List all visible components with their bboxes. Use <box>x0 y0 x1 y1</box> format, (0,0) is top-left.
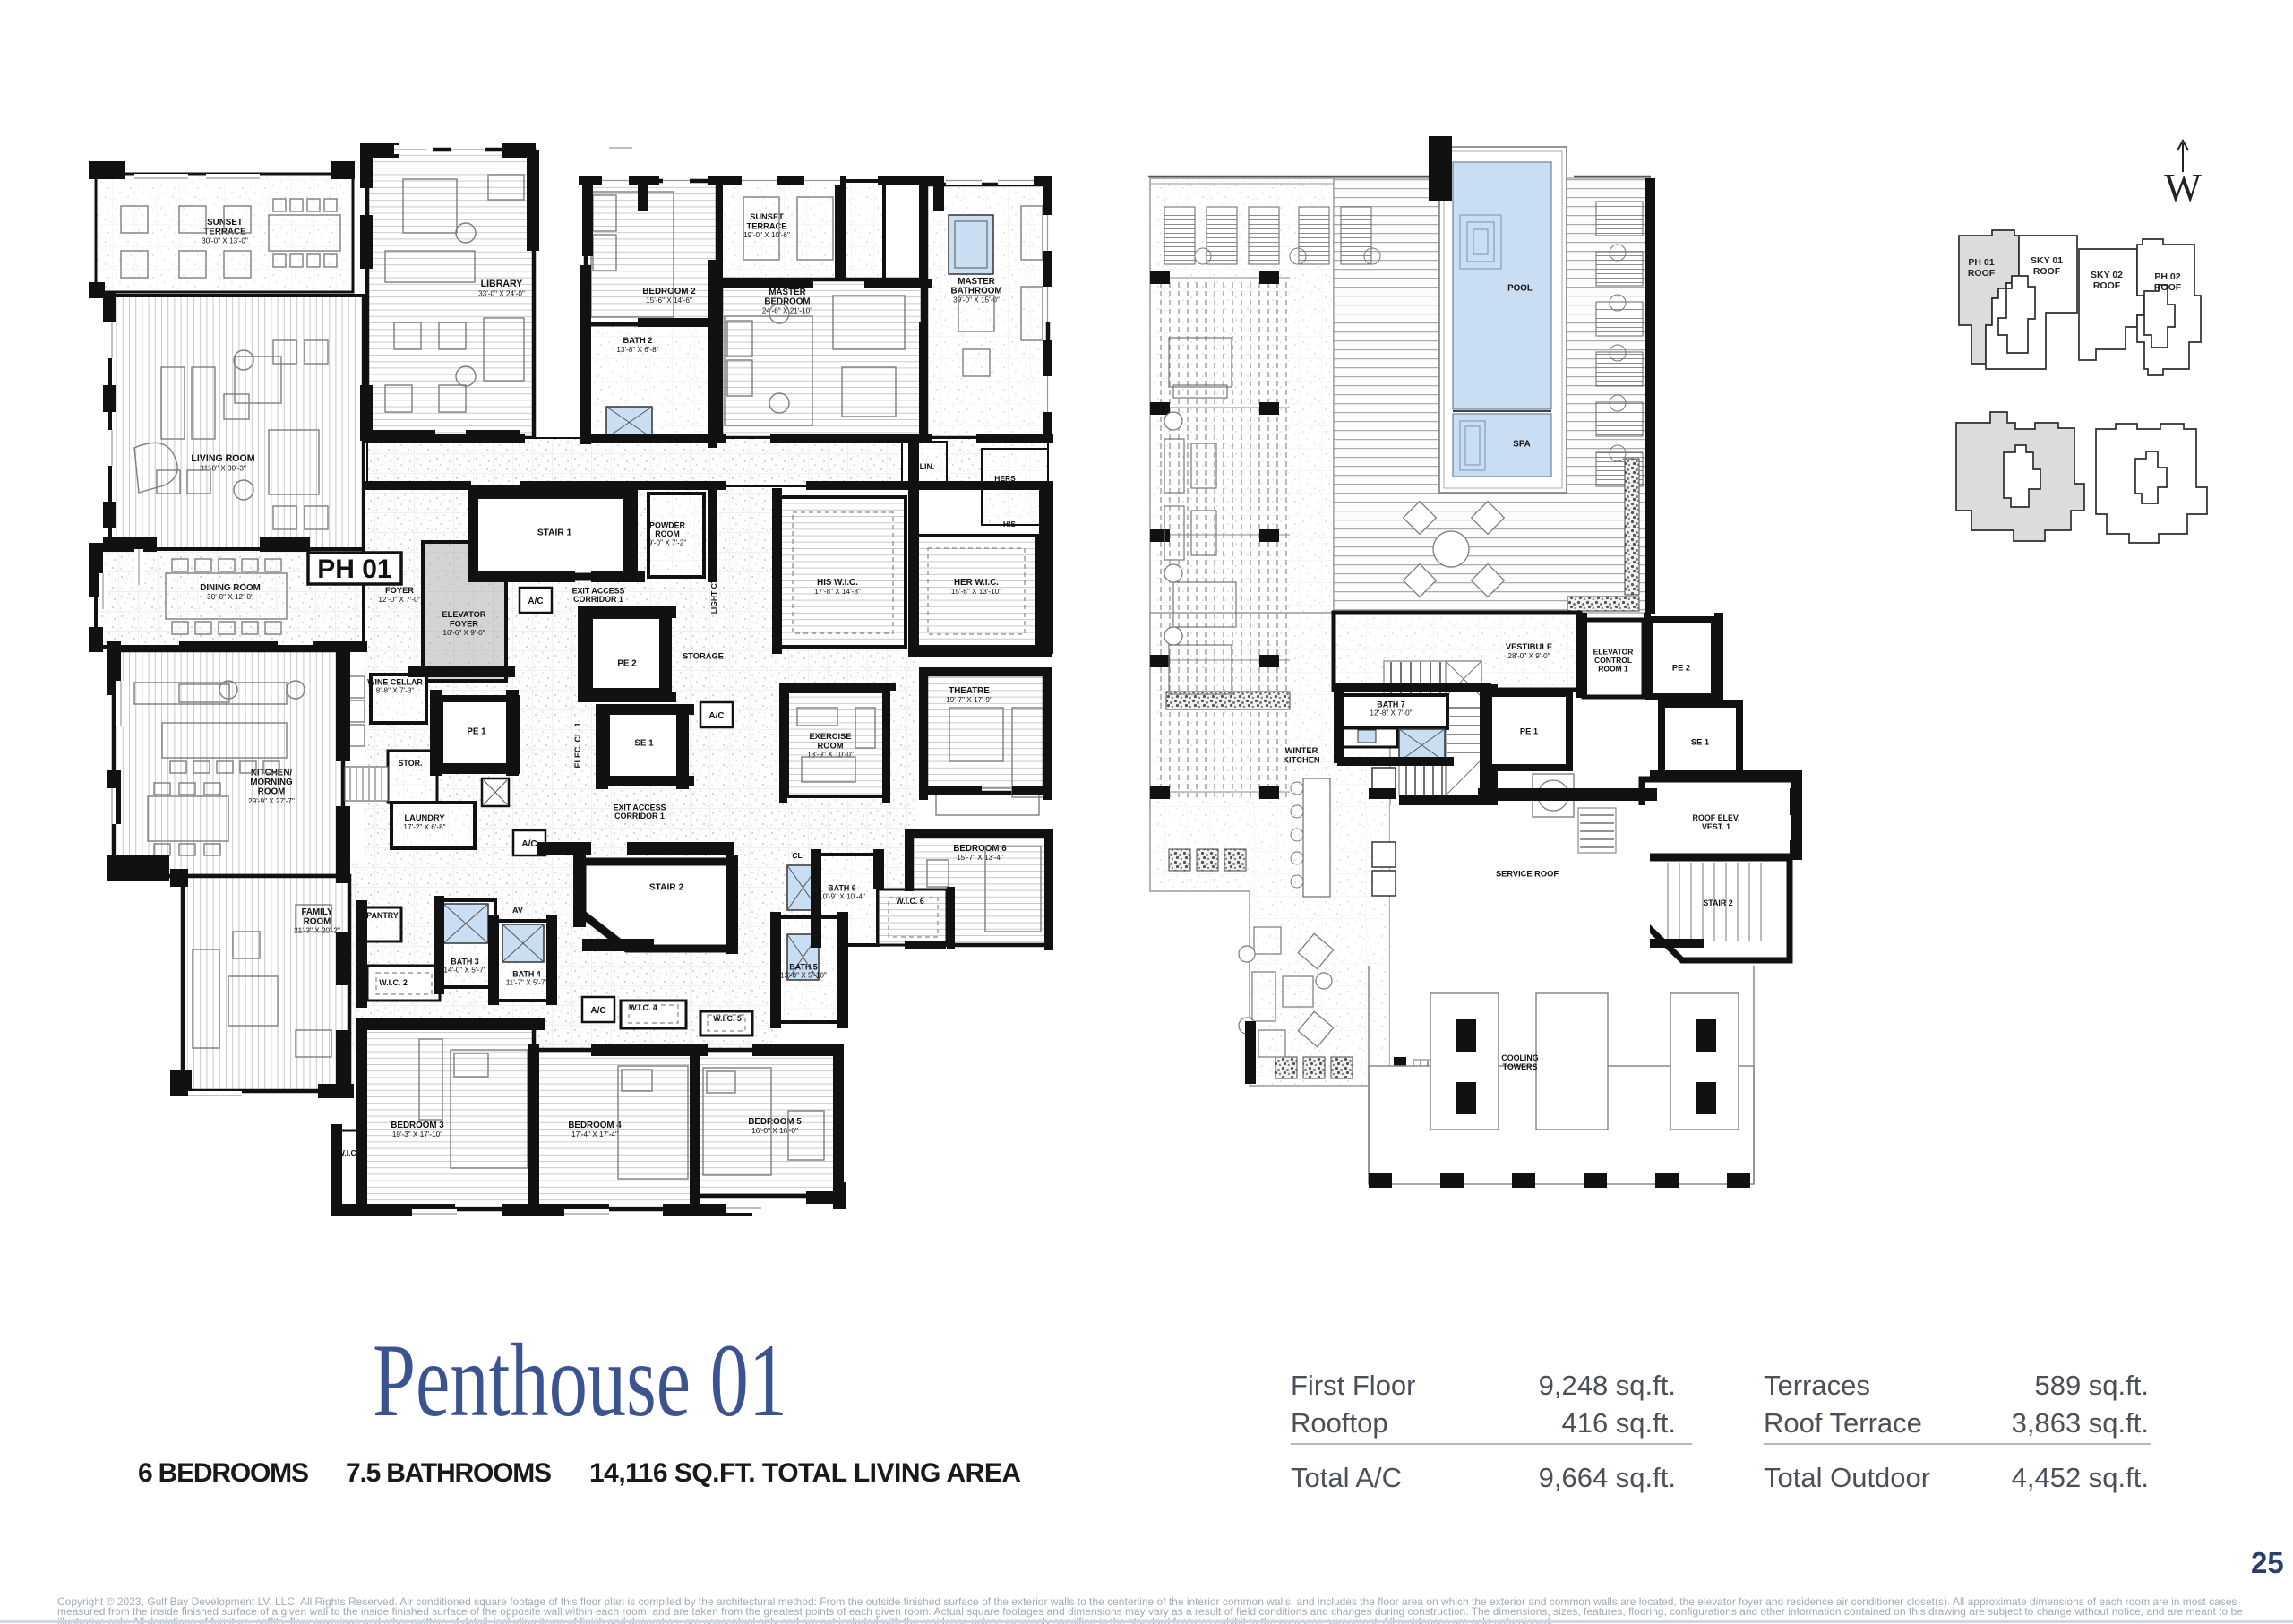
svg-text:PANTRY: PANTRY <box>366 911 399 920</box>
svg-text:SUNSET: SUNSET <box>207 218 243 228</box>
svg-text:BATH 2: BATH 2 <box>623 336 653 345</box>
svg-text:9,664 sq.ft.: 9,664 sq.ft. <box>1539 1462 1676 1493</box>
svg-text:Rooftop: Rooftop <box>1291 1407 1388 1439</box>
svg-text:16'-6" X 9'-0": 16'-6" X 9'-0" <box>442 629 485 637</box>
svg-text:EXIT ACCESS: EXIT ACCESS <box>614 803 666 812</box>
svg-text:ROOM: ROOM <box>258 787 285 797</box>
svg-text:HIS: HIS <box>1003 520 1017 528</box>
svg-text:W.I.C. 2: W.I.C. 2 <box>379 978 408 987</box>
svg-text:WINTER: WINTER <box>1285 746 1318 755</box>
svg-text:KITCHEN: KITCHEN <box>1283 756 1320 765</box>
svg-text:17'-4" X 17'-4": 17'-4" X 17'-4" <box>571 1130 618 1139</box>
svg-text:17'-8" X 14'-8": 17'-8" X 14'-8" <box>814 588 861 596</box>
svg-text:13'-8" X 6'-8": 13'-8" X 6'-8" <box>616 346 658 354</box>
svg-text:ELEVATOR: ELEVATOR <box>442 610 485 619</box>
svg-text:14,116 SQ.FT. TOTAL LIVING ARE: 14,116 SQ.FT. TOTAL LIVING AREA <box>589 1458 1021 1488</box>
svg-text:STOR.: STOR. <box>399 759 423 768</box>
svg-text:17'-2" X 6'-8": 17'-2" X 6'-8" <box>403 823 445 831</box>
svg-text:Total Outdoor: Total Outdoor <box>1764 1462 1930 1493</box>
svg-text:4,452 sq.ft.: 4,452 sq.ft. <box>2012 1462 2149 1493</box>
svg-text:First Floor: First Floor <box>1291 1370 1416 1401</box>
svg-text:SE 1: SE 1 <box>634 738 654 748</box>
svg-text:FOYER: FOYER <box>450 619 478 628</box>
svg-text:16'-0" X 16'-0": 16'-0" X 16'-0" <box>751 1127 798 1135</box>
svg-text:ROOM: ROOM <box>304 916 331 926</box>
svg-text:TERRACE: TERRACE <box>747 221 787 230</box>
svg-text:A/C: A/C <box>528 597 543 606</box>
svg-text:A/C: A/C <box>521 839 537 849</box>
svg-text:ROOM: ROOM <box>655 529 680 538</box>
svg-text:Total A/C: Total A/C <box>1291 1462 1402 1493</box>
svg-text:ROOF ELEV.: ROOF ELEV. <box>1693 813 1740 822</box>
svg-text:LAUNDRY: LAUNDRY <box>404 813 445 822</box>
svg-text:STAIR 2: STAIR 2 <box>1703 898 1732 907</box>
svg-text:SKY 02: SKY 02 <box>2091 270 2123 280</box>
svg-text:LIVING ROOM: LIVING ROOM <box>191 453 254 464</box>
svg-text:PE 2: PE 2 <box>1672 663 1690 672</box>
svg-text:AV: AV <box>512 906 523 915</box>
svg-text:STAIR 2: STAIR 2 <box>649 883 684 893</box>
svg-text:Terraces: Terraces <box>1764 1370 1870 1401</box>
svg-text:9,248 sq.ft.: 9,248 sq.ft. <box>1539 1370 1676 1401</box>
svg-text:WINE CELLAR: WINE CELLAR <box>367 677 423 686</box>
svg-text:CORRIDOR 1: CORRIDOR 1 <box>614 812 665 821</box>
svg-text:19'-0" X 10'-6": 19'-0" X 10'-6" <box>743 231 790 239</box>
svg-text:SPA: SPA <box>1513 439 1530 449</box>
svg-text:ROOF: ROOF <box>2093 280 2121 291</box>
svg-text:Penthouse 01: Penthouse 01 <box>373 1323 787 1439</box>
svg-text:19'-7" X 17'-9": 19'-7" X 17'-9" <box>946 696 992 704</box>
svg-text:416 sq.ft.: 416 sq.ft. <box>1561 1407 1676 1439</box>
svg-text:589 sq.ft.: 589 sq.ft. <box>2034 1370 2149 1401</box>
svg-text:STORAGE: STORAGE <box>683 651 724 660</box>
svg-text:THEATRE: THEATRE <box>949 686 990 696</box>
svg-text:SE 1: SE 1 <box>1691 737 1709 746</box>
svg-text:BEDROOM 3: BEDROOM 3 <box>391 1121 444 1130</box>
svg-text:21'-3" X 20'-2": 21'-3" X 20'-2" <box>294 927 340 935</box>
svg-text:28'-0" X 9'-0": 28'-0" X 9'-0" <box>1507 652 1550 660</box>
svg-text:MASTER: MASTER <box>958 277 994 287</box>
svg-text:BEDROOM 5: BEDROOM 5 <box>748 1117 802 1127</box>
svg-text:BATH 3: BATH 3 <box>451 957 478 966</box>
svg-text:BATH 4: BATH 4 <box>512 969 540 978</box>
svg-text:15'-6" X 13'-10": 15'-6" X 13'-10" <box>951 588 1001 596</box>
svg-text:EXERCISE: EXERCISE <box>809 732 851 741</box>
svg-text:W.I.C. 6: W.I.C. 6 <box>896 897 924 906</box>
svg-text:HER W.I.C.: HER W.I.C. <box>954 578 999 588</box>
svg-text:33'-0" X 24'-0": 33'-0" X 24'-0" <box>478 290 525 298</box>
svg-text:PE 1: PE 1 <box>1520 726 1538 735</box>
svg-text:LIN.: LIN. <box>920 462 935 471</box>
svg-text:TERRACE: TERRACE <box>203 227 246 236</box>
svg-text:31'-0" X 30'-3": 31'-0" X 30'-3" <box>200 465 246 473</box>
svg-text:12'-8" X 7'-0": 12'-8" X 7'-0" <box>1370 709 1412 717</box>
svg-text:6 BEDROOMS: 6 BEDROOMS <box>138 1458 309 1488</box>
svg-text:FOYER: FOYER <box>385 586 414 595</box>
svg-text:CL: CL <box>792 851 802 860</box>
svg-text:39'-0" X 15'-0": 39'-0" X 15'-0" <box>953 296 1000 305</box>
svg-text:10'-9" X 10'-4": 10'-9" X 10'-4" <box>819 893 865 901</box>
svg-text:ROOF: ROOF <box>2033 266 2061 277</box>
svg-text:STAIR 1: STAIR 1 <box>537 528 572 538</box>
svg-text:14'-0" X 5'-7": 14'-0" X 5'-7" <box>443 967 485 975</box>
svg-text:MASTER: MASTER <box>769 288 805 297</box>
svg-text:BATH 7: BATH 7 <box>1377 700 1404 709</box>
svg-text:ROOM: ROOM <box>818 741 844 750</box>
svg-text:EXIT ACCESS: EXIT ACCESS <box>572 586 625 595</box>
svg-text:MORNING: MORNING <box>250 778 293 787</box>
svg-text:HIS W.I.C.: HIS W.I.C. <box>817 578 858 588</box>
svg-text:CONTROL: CONTROL <box>1594 656 1632 665</box>
svg-text:BEDROOM: BEDROOM <box>764 296 810 306</box>
svg-text:A/C: A/C <box>590 1006 605 1016</box>
svg-text:FAMILY: FAMILY <box>301 907 332 917</box>
svg-text:ROOM 1: ROOM 1 <box>1598 665 1628 674</box>
svg-text:SERVICE ROOF: SERVICE ROOF <box>1496 869 1559 878</box>
svg-text:19'-3" X 17'-10": 19'-3" X 17'-10" <box>392 1130 442 1139</box>
svg-text:W.I.C. 5: W.I.C. 5 <box>713 1014 742 1023</box>
svg-text:A/C: A/C <box>709 711 724 721</box>
svg-text:ELEVATOR: ELEVATOR <box>1593 647 1634 656</box>
svg-text:7.5 BATHROOMS: 7.5 BATHROOMS <box>346 1458 552 1488</box>
svg-text:12'-0" X 7'-0": 12'-0" X 7'-0" <box>378 596 420 604</box>
svg-text:BATHROOM: BATHROOM <box>951 286 1002 296</box>
svg-text:3,863 sq.ft.: 3,863 sq.ft. <box>2012 1407 2149 1439</box>
svg-text:POOL: POOL <box>1507 283 1533 293</box>
svg-text:ELEC. CL. 1: ELEC. CL. 1 <box>573 722 582 768</box>
svg-text:ROOF: ROOF <box>1968 268 1996 279</box>
svg-text:VEST. 1: VEST. 1 <box>1702 822 1730 831</box>
svg-text:BEDROOM 4: BEDROOM 4 <box>568 1121 622 1130</box>
svg-text:SKY 01: SKY 01 <box>2031 255 2063 266</box>
svg-text:30'-0" X 12'-0": 30'-0" X 12'-0" <box>207 593 253 601</box>
svg-text:W: W <box>2164 166 2202 210</box>
svg-text:13'-8" X 5'-10": 13'-8" X 5'-10" <box>780 972 827 980</box>
svg-text:ROOF: ROOF <box>2154 282 2182 293</box>
svg-text:BATH 6: BATH 6 <box>828 883 855 892</box>
svg-text:9'-0" X 7'-2": 9'-0" X 7'-2" <box>648 539 687 547</box>
svg-text:TOWERS: TOWERS <box>1503 1062 1538 1071</box>
svg-text:PE 2: PE 2 <box>617 658 637 668</box>
svg-text:DINING ROOM: DINING ROOM <box>200 583 261 593</box>
svg-text:PE 1: PE 1 <box>467 726 486 736</box>
svg-text:11'-7" X 5'-7": 11'-7" X 5'-7" <box>506 979 548 987</box>
svg-text:W.I.C. 4: W.I.C. 4 <box>629 1003 657 1012</box>
svg-text:BATH 5: BATH 5 <box>789 962 817 971</box>
svg-text:POWDER: POWDER <box>649 520 686 529</box>
svg-text:PH 01: PH 01 <box>317 554 391 584</box>
svg-text:15'-6" X 14'-6": 15'-6" X 14'-6" <box>646 296 692 305</box>
svg-text:CORRIDOR 1: CORRIDOR 1 <box>573 595 623 604</box>
svg-text:PH 01: PH 01 <box>1968 257 1994 268</box>
svg-text:PH 02: PH 02 <box>2154 271 2180 282</box>
svg-text:15'-7" X 13'-4": 15'-7" X 13'-4" <box>957 854 1003 862</box>
svg-text:BEDROOM 2: BEDROOM 2 <box>642 287 696 296</box>
svg-text:COOLING: COOLING <box>1501 1053 1539 1062</box>
svg-text:LIBRARY: LIBRARY <box>481 279 523 289</box>
svg-text:Roof Terrace: Roof Terrace <box>1764 1407 1922 1439</box>
svg-text:30'-0" X 13'-0": 30'-0" X 13'-0" <box>202 237 248 245</box>
svg-text:BEDROOM 6: BEDROOM 6 <box>953 844 1007 854</box>
svg-text:8'-8" X 7'-3": 8'-8" X 7'-3" <box>376 687 415 695</box>
svg-text:29'-9" X 27'-7": 29'-9" X 27'-7" <box>248 797 295 805</box>
svg-text:VESTIBULE: VESTIBULE <box>1506 642 1552 651</box>
